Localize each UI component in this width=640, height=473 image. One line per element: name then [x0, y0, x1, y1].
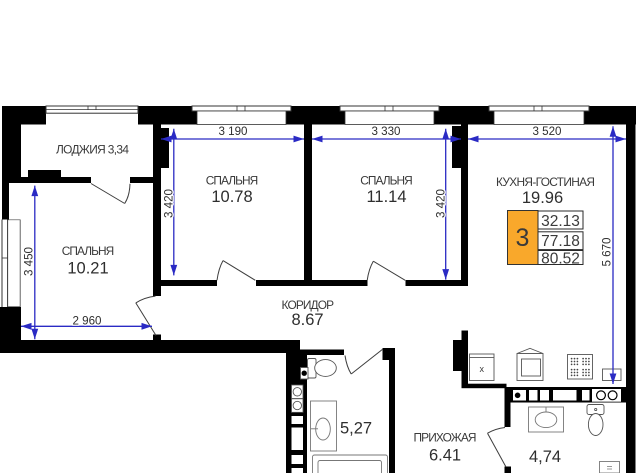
svg-text:КУХНЯ-ГОСТИНАЯ: КУХНЯ-ГОСТИНАЯ	[496, 175, 595, 189]
svg-text:3 420: 3 420	[435, 189, 448, 218]
svg-text:3 330: 3 330	[371, 125, 400, 138]
svg-text:2 960: 2 960	[72, 314, 101, 327]
svg-text:10.78: 10.78	[211, 188, 252, 206]
svg-text:3 190: 3 190	[218, 125, 247, 138]
svg-text:3 520: 3 520	[532, 125, 561, 138]
svg-text:4,74: 4,74	[529, 448, 561, 466]
svg-text:СПАЛЬНЯ: СПАЛЬНЯ	[62, 244, 115, 258]
svg-text:8.67: 8.67	[291, 311, 323, 329]
svg-text:СПАЛЬНЯ: СПАЛЬНЯ	[360, 173, 413, 187]
svg-text:6.41: 6.41	[429, 446, 461, 464]
svg-text:10.21: 10.21	[67, 260, 108, 278]
svg-text:32.13: 32.13	[541, 213, 580, 230]
svg-text:3 420: 3 420	[163, 189, 176, 218]
svg-text:11.14: 11.14	[366, 188, 406, 206]
svg-text:77.18: 77.18	[541, 233, 580, 250]
svg-text:ЛОДЖИЯ 3,34: ЛОДЖИЯ 3,34	[56, 143, 129, 157]
svg-text:СПАЛЬНЯ: СПАЛЬНЯ	[206, 173, 259, 187]
svg-text:19.96: 19.96	[522, 189, 563, 207]
svg-text:5 670: 5 670	[601, 237, 614, 266]
svg-text:80.52: 80.52	[541, 250, 580, 267]
svg-text:x: x	[480, 364, 485, 374]
svg-text:КОРИДОР: КОРИДОР	[282, 298, 335, 312]
svg-text:3 450: 3 450	[22, 247, 35, 276]
svg-text:ПРИХОЖАЯ: ПРИХОЖАЯ	[414, 430, 477, 444]
svg-text:5,27: 5,27	[340, 419, 372, 437]
svg-text:3: 3	[516, 224, 530, 252]
